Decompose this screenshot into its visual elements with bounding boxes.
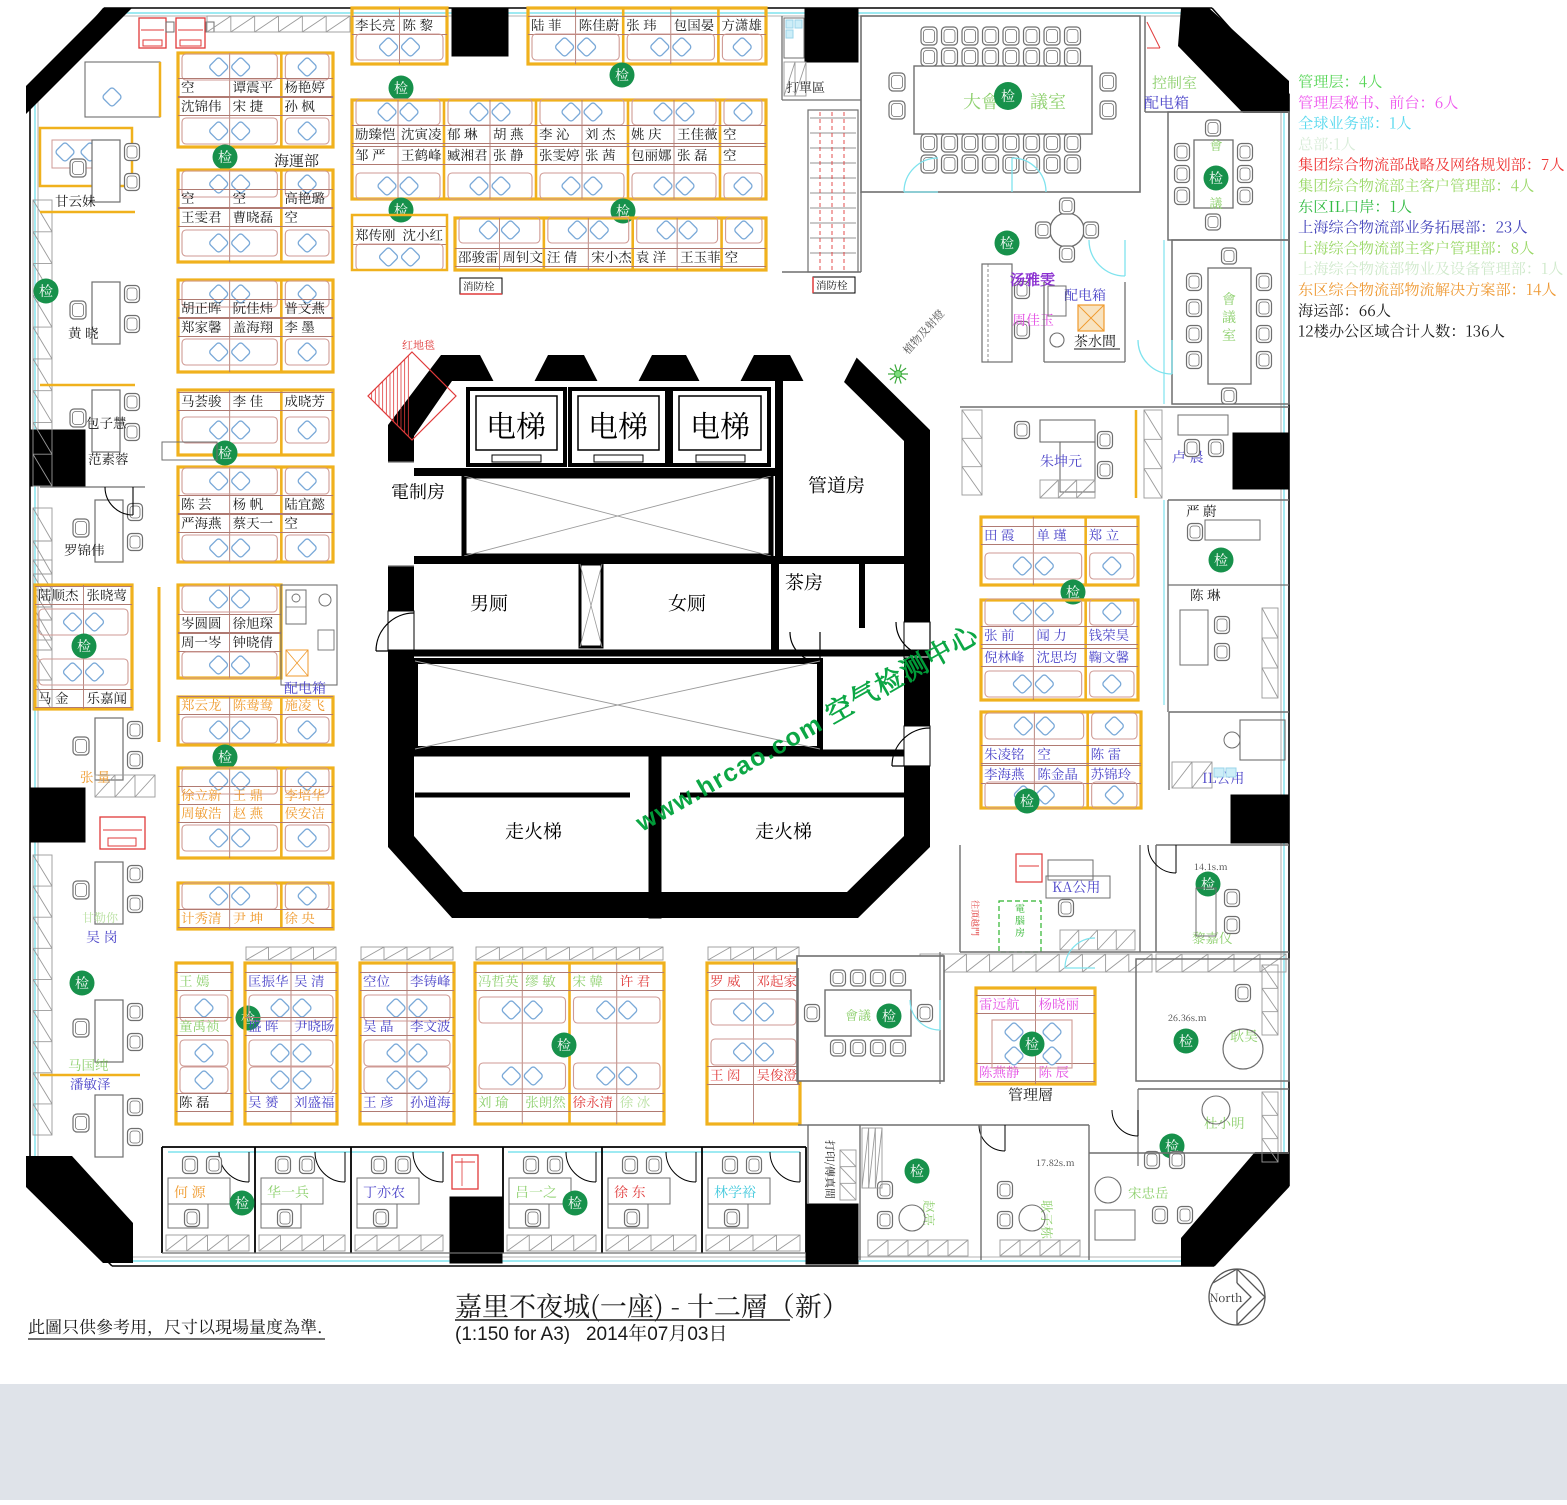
svg-text:王玉菲: 王玉菲: [680, 246, 721, 266]
svg-text:检: 检: [218, 147, 232, 167]
svg-text:空: 空: [181, 187, 195, 207]
svg-text:乐嘉闻: 乐嘉闻: [87, 687, 128, 707]
svg-text:检: 检: [394, 78, 408, 98]
svg-text:空: 空: [723, 144, 737, 164]
svg-text:宋忠岳: 宋忠岳: [1128, 1182, 1169, 1202]
svg-text:空: 空: [284, 512, 298, 532]
svg-text:何 源: 何 源: [174, 1182, 206, 1202]
svg-text:岑圆圆: 岑圆圆: [181, 612, 222, 632]
svg-text:尹 坤: 尹 坤: [233, 907, 263, 927]
svg-text:沈小红: 沈小红: [403, 224, 444, 244]
svg-text:检: 检: [557, 1035, 571, 1055]
svg-text:郑 立: 郑 立: [1089, 524, 1119, 544]
svg-text:此圖只供參考用，尺寸以現場量度為準.: 此圖只供參考用，尺寸以現場量度為準.: [28, 1313, 323, 1338]
svg-text:控制室: 控制室: [1152, 72, 1197, 93]
svg-text:沈寅凌: 沈寅凌: [401, 123, 442, 143]
svg-text:海運部: 海運部: [274, 150, 319, 171]
svg-text:電制房: 電制房: [391, 478, 445, 504]
svg-text:李 沁: 李 沁: [539, 123, 569, 143]
svg-text:施凌飞: 施凌飞: [284, 694, 325, 714]
svg-text:检: 检: [75, 973, 89, 993]
svg-text:空: 空: [723, 123, 737, 143]
svg-text:盖海翔: 盖海翔: [233, 316, 274, 336]
svg-text:陈 芸: 陈 芸: [181, 493, 211, 513]
svg-text:陈鸯鸯: 陈鸯鸯: [233, 694, 274, 714]
svg-text:周敏浩: 周敏浩: [181, 802, 222, 822]
svg-text:东区综合物流部物流解决方案部：14人: 东区综合物流部物流解决方案部：14人: [1298, 279, 1557, 300]
svg-text:陆宜懿: 陆宜懿: [284, 493, 325, 513]
svg-text:闻 力: 闻 力: [1036, 624, 1066, 644]
svg-text:罗 威: 罗 威: [710, 970, 741, 990]
svg-text:林学裕: 林学裕: [714, 1182, 756, 1202]
svg-text:海运部：66人: 海运部：66人: [1298, 300, 1391, 321]
svg-text:严 蔚: 严 蔚: [1186, 500, 1217, 520]
svg-text:26.36s.m: 26.36s.m: [1168, 1011, 1207, 1024]
svg-text:郑家馨: 郑家馨: [181, 316, 222, 336]
svg-text:马荟骏: 马荟骏: [181, 390, 222, 410]
svg-text:王 彦: 王 彦: [363, 1091, 393, 1111]
svg-text:李海燕: 李海燕: [984, 763, 1025, 783]
svg-text:李文波: 李文波: [410, 1015, 451, 1035]
svg-text:管道房: 管道房: [808, 471, 865, 498]
svg-text:李 佳: 李 佳: [233, 390, 264, 410]
svg-text:检: 检: [218, 443, 232, 463]
svg-text:阮佳炜: 阮佳炜: [233, 297, 274, 317]
svg-text:甘勒你: 甘勒你: [82, 909, 118, 926]
svg-text:红地毯: 红地毯: [402, 337, 435, 353]
svg-text:全球业务部：1人: 全球业务部：1人: [1298, 113, 1411, 134]
svg-text:管理层：4人: 管理层：4人: [1298, 71, 1382, 92]
svg-text:张晓莺: 张晓莺: [87, 584, 128, 604]
svg-text:陈 磊: 陈 磊: [179, 1091, 209, 1111]
svg-text:检: 检: [394, 200, 408, 220]
svg-text:孙 枫: 孙 枫: [284, 95, 315, 115]
svg-text:匡振华: 匡振华: [248, 970, 289, 990]
svg-text:冯哲英: 冯哲英: [478, 970, 519, 990]
svg-text:蔡天一: 蔡天一: [233, 512, 274, 532]
svg-text:成晓芳: 成晓芳: [284, 390, 325, 410]
svg-text:空: 空: [1037, 743, 1051, 763]
svg-text:罗锦伟: 罗锦伟: [64, 539, 105, 559]
svg-text:宋 韓: 宋 韓: [573, 970, 603, 990]
svg-text:张 玮: 张 玮: [626, 14, 656, 34]
svg-text:議室: 議室: [1030, 88, 1066, 114]
svg-text:单 瑾: 单 瑾: [1036, 524, 1067, 544]
svg-text:计秀清: 计秀清: [181, 907, 222, 927]
svg-text:12楼办公区域合计人数：136人: 12楼办公区域合计人数：136人: [1298, 321, 1505, 342]
svg-text:检: 检: [1201, 874, 1215, 894]
svg-text:华一兵: 华一兵: [267, 1182, 309, 1202]
svg-text:王 闳: 王 闳: [710, 1064, 740, 1084]
svg-text:郑云龙: 郑云龙: [181, 694, 222, 714]
svg-text:配电箱: 配电箱: [1144, 92, 1189, 113]
svg-text:包国晏: 包国晏: [674, 14, 715, 34]
svg-text:空: 空: [284, 206, 298, 226]
svg-text:刘 杰: 刘 杰: [585, 123, 616, 143]
svg-text:胡正晖: 胡正晖: [181, 297, 222, 317]
svg-text:走火梯: 走火梯: [505, 817, 562, 844]
svg-text:徐永清: 徐永清: [573, 1091, 614, 1111]
svg-text:杨艳婷: 杨艳婷: [284, 76, 325, 96]
svg-text:张 前: 张 前: [984, 624, 1014, 644]
svg-text:上海综合物流部物业及设备管理部：1人: 上海综合物流部物业及设备管理部：1人: [1298, 258, 1563, 279]
svg-text:童禹祯: 童禹祯: [179, 1015, 220, 1035]
svg-text:陈 琳: 陈 琳: [1190, 584, 1221, 604]
svg-text:(1:150 for A3) 2014年07月03日: (1:150 for A3) 2014年07月03日: [455, 1323, 728, 1345]
svg-text:赵 燕: 赵 燕: [233, 802, 263, 822]
svg-text:检: 检: [1000, 233, 1014, 253]
svg-text:刘盛福: 刘盛福: [294, 1091, 335, 1111]
svg-text:吴 清: 吴 清: [294, 970, 324, 990]
svg-text:吴俊澄: 吴俊澄: [757, 1064, 798, 1084]
svg-text:陈佳蔚: 陈佳蔚: [579, 14, 620, 34]
svg-text:检: 检: [218, 747, 232, 767]
svg-text:朱凌铭: 朱凌铭: [984, 743, 1025, 763]
svg-text:王佳薇: 王佳薇: [677, 123, 718, 143]
svg-text:郁 琳: 郁 琳: [447, 123, 478, 143]
svg-text:集团综合物流部战略及网络规划部：7人: 集团综合物流部战略及网络规划部：7人: [1298, 154, 1565, 175]
svg-text:检: 检: [39, 281, 53, 301]
svg-text:总部:1人: 总部:1人: [1298, 133, 1356, 154]
svg-text:上海综合物流部主客户管理部：8人: 上海综合物流部主客户管理部：8人: [1298, 237, 1534, 258]
svg-text:东区IL口岸：1人: 东区IL口岸：1人: [1298, 196, 1412, 217]
svg-text:耿子栋: 耿子栋: [1038, 1200, 1057, 1239]
svg-text:孙道海: 孙道海: [410, 1091, 451, 1111]
svg-text:杜小明: 杜小明: [1204, 1112, 1245, 1132]
svg-text:周一岑: 周一岑: [181, 631, 222, 651]
svg-text:吴 岗: 吴 岗: [86, 927, 118, 947]
svg-text:普文燕: 普文燕: [284, 297, 325, 317]
svg-text:张 茜: 张 茜: [585, 144, 615, 164]
svg-text:包丽娜: 包丽娜: [631, 144, 672, 164]
svg-text:胡 燕: 胡 燕: [493, 123, 523, 143]
svg-text:电梯: 电梯: [690, 402, 750, 446]
svg-text:陈 黎: 陈 黎: [403, 14, 434, 34]
svg-text:邹 严: 邹 严: [355, 144, 385, 164]
svg-text:丁亦农: 丁亦农: [363, 1182, 405, 1202]
svg-text:高艳璐: 高艳璐: [284, 187, 325, 207]
svg-text:严海燕: 严海燕: [181, 512, 222, 532]
svg-text:苏锦玲: 苏锦玲: [1091, 763, 1132, 783]
svg-text:臧湘君: 臧湘君: [447, 144, 488, 164]
svg-text:議: 議: [1222, 307, 1236, 327]
svg-text:空位: 空位: [363, 970, 390, 990]
svg-text:North: North: [1209, 1290, 1242, 1306]
svg-text:打單區: 打單區: [786, 77, 825, 96]
svg-text:范素蓉: 范素蓉: [88, 448, 129, 468]
svg-text:房: 房: [1015, 924, 1025, 939]
svg-text:电梯: 电梯: [486, 402, 546, 446]
svg-text:刘 瑜: 刘 瑜: [478, 1091, 509, 1111]
svg-text:王雯君: 王雯君: [181, 206, 222, 226]
svg-text:宋 捷: 宋 捷: [233, 95, 264, 115]
svg-text:管理層: 管理層: [1008, 1084, 1053, 1105]
svg-text:张雯婷: 张雯婷: [539, 144, 580, 164]
svg-text:消防栓: 消防栓: [463, 279, 495, 294]
svg-text:李培华: 李培华: [284, 784, 325, 804]
svg-text:王鹤峰: 王鹤峰: [401, 144, 442, 164]
svg-text:徐旭琛: 徐旭琛: [233, 612, 274, 632]
svg-text:14.1s.m: 14.1s.m: [1194, 860, 1228, 873]
svg-text:鞠文馨: 鞠文馨: [1089, 646, 1130, 666]
svg-text:集团综合物流部主客户管理部：4人: 集团综合物流部主客户管理部：4人: [1298, 175, 1534, 196]
svg-text:男厕: 男厕: [470, 589, 508, 616]
svg-text:徐 冰: 徐 冰: [620, 1091, 651, 1111]
svg-text:吕一之: 吕一之: [515, 1182, 557, 1202]
svg-text:马国纯: 马国纯: [68, 1054, 109, 1074]
svg-text:會議: 會議: [845, 1005, 871, 1024]
svg-text:王 嫣: 王 嫣: [179, 970, 210, 990]
svg-text:李 墨: 李 墨: [284, 316, 314, 336]
svg-text:检: 检: [568, 1193, 582, 1213]
svg-text:检: 检: [882, 1006, 896, 1026]
svg-text:检: 检: [1214, 550, 1228, 570]
svg-text:上海综合物流部业务拓展部：23人: 上海综合物流部业务拓展部：23人: [1298, 217, 1528, 238]
svg-text:钱荣昊: 钱荣昊: [1089, 624, 1130, 644]
svg-text:走火梯: 走火梯: [755, 817, 812, 844]
svg-text:姚 庆: 姚 庆: [631, 123, 662, 143]
svg-text:杨 帆: 杨 帆: [233, 493, 264, 513]
svg-text:周钊文: 周钊文: [502, 246, 543, 266]
svg-text:陆 菲: 陆 菲: [531, 14, 561, 34]
svg-text:沈思均: 沈思均: [1036, 646, 1077, 666]
svg-text:邓起家: 邓起家: [757, 970, 798, 990]
svg-text:许 君: 许 君: [620, 970, 650, 990]
svg-text:袁 洋: 袁 洋: [636, 246, 667, 266]
svg-text:茶水間: 茶水間: [1074, 331, 1116, 351]
svg-text:盛 晖: 盛 晖: [248, 1015, 279, 1035]
svg-text:吴 晶: 吴 晶: [363, 1015, 393, 1035]
svg-text:宋小杰: 宋小杰: [591, 246, 632, 266]
svg-text:徐 央: 徐 央: [284, 907, 315, 927]
svg-text:沈锦伟: 沈锦伟: [181, 95, 222, 115]
svg-text:王 鼎: 王 鼎: [233, 784, 263, 804]
svg-text:方潇雄: 方潇雄: [721, 14, 762, 34]
svg-text:检: 检: [235, 1193, 249, 1213]
svg-text:大會: 大會: [963, 88, 999, 114]
svg-text:室: 室: [1222, 325, 1236, 345]
svg-text:缪 敏: 缪 敏: [525, 970, 556, 990]
svg-text:17.82s.m: 17.82s.m: [1036, 1156, 1075, 1169]
svg-text:检: 检: [910, 1161, 924, 1181]
svg-text:郑传刚: 郑传刚: [355, 224, 396, 244]
svg-text:黄 晓: 黄 晓: [68, 322, 98, 342]
svg-text:打印/傳真間: 打印/傳真間: [822, 1140, 838, 1199]
svg-text:赵亮: 赵亮: [920, 1200, 939, 1226]
svg-text:张 静: 张 静: [493, 144, 524, 164]
svg-text:配电箱: 配电箱: [1064, 285, 1106, 305]
svg-text:张 磊: 张 磊: [677, 144, 707, 164]
svg-text:检: 检: [1020, 791, 1034, 811]
svg-text:李长亮: 李长亮: [355, 14, 396, 34]
svg-text:吴 赟: 吴 赟: [248, 1091, 278, 1111]
svg-text:检: 检: [1001, 86, 1015, 106]
svg-text:检: 检: [1209, 168, 1223, 188]
svg-text:徐 东: 徐 东: [614, 1182, 646, 1202]
svg-text:陆顺杰: 陆顺杰: [38, 584, 79, 604]
svg-text:倪林峰: 倪林峰: [984, 646, 1025, 666]
svg-text:励臻恺: 励臻恺: [355, 123, 396, 143]
svg-text:侯安洁: 侯安洁: [284, 802, 325, 822]
svg-text:會: 會: [1222, 289, 1236, 309]
svg-text:电梯: 电梯: [588, 402, 648, 446]
svg-text:嘉里不夜城(一座) - 十二層（新）: 嘉里不夜城(一座) - 十二層（新）: [455, 1285, 849, 1324]
svg-text:徐立新: 徐立新: [181, 784, 222, 804]
svg-text:检: 检: [1025, 1034, 1039, 1054]
svg-text:杨晓丽: 杨晓丽: [1039, 993, 1080, 1013]
svg-text:朱坤元: 朱坤元: [1040, 451, 1082, 471]
svg-text:管理层秘书、前台：6人: 管理层秘书、前台：6人: [1298, 92, 1458, 113]
svg-text:马 金: 马 金: [38, 687, 69, 707]
svg-text:空: 空: [181, 76, 195, 96]
svg-text:邵骏雷: 邵骏雷: [458, 246, 499, 266]
svg-text:會: 會: [1209, 135, 1222, 154]
svg-text:李铸峰: 李铸峰: [410, 970, 451, 990]
svg-text:茶房: 茶房: [785, 568, 823, 595]
svg-text:汪 倩: 汪 倩: [547, 246, 577, 266]
svg-text:甘云妹: 甘云妹: [55, 190, 96, 210]
svg-text:包子慧: 包子慧: [86, 412, 127, 432]
svg-text:尹晓旸: 尹晓旸: [294, 1015, 335, 1035]
svg-text:往頂越門: 往頂越門: [969, 900, 982, 936]
svg-text:谭震平: 谭震平: [233, 76, 274, 96]
svg-text:钟晓倩: 钟晓倩: [233, 631, 274, 651]
svg-text:議: 議: [1209, 193, 1222, 212]
svg-text:女厕: 女厕: [668, 589, 706, 616]
svg-text:空: 空: [233, 187, 247, 207]
svg-text:空: 空: [725, 246, 739, 266]
svg-text:雷远航: 雷远航: [979, 993, 1020, 1013]
svg-text:张朗然: 张朗然: [525, 1091, 566, 1111]
svg-text:曹晓磊: 曹晓磊: [233, 206, 274, 226]
svg-text:陈 雷: 陈 雷: [1091, 743, 1121, 763]
svg-text:检: 检: [1179, 1031, 1193, 1051]
svg-text:陈金晶: 陈金晶: [1037, 763, 1078, 783]
svg-text:消防栓: 消防栓: [816, 278, 848, 293]
svg-text:检: 检: [615, 65, 629, 85]
svg-text:田 霞: 田 霞: [984, 524, 1015, 544]
svg-text:检: 检: [77, 636, 91, 656]
